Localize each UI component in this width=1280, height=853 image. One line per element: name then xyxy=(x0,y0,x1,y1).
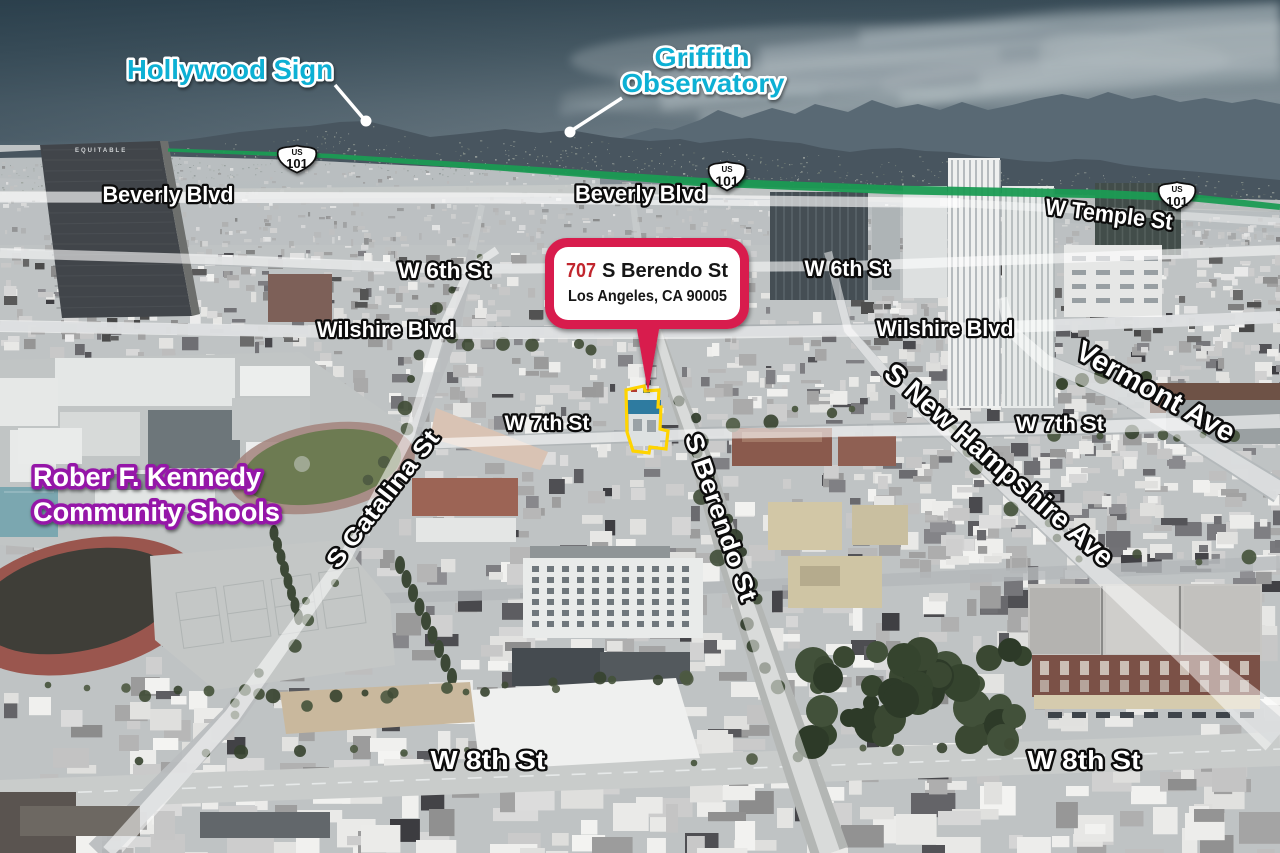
svg-text:Community Shools: Community Shools xyxy=(33,497,280,527)
svg-text:Hollywood Sign: Hollywood Sign xyxy=(127,54,333,85)
svg-text:Beverly Blvd: Beverly Blvd xyxy=(103,182,234,207)
svg-text:W 7th St: W 7th St xyxy=(505,412,590,435)
svg-text:W 6th St: W 6th St xyxy=(805,256,891,281)
svg-text:W 8th St: W 8th St xyxy=(431,745,546,775)
svg-text:EQUITABLE: EQUITABLE xyxy=(75,148,127,154)
svg-text:Observatory: Observatory xyxy=(622,68,786,98)
svg-text:US: US xyxy=(1171,185,1183,194)
svg-text:Los Angeles, CA 90005: Los Angeles, CA 90005 xyxy=(568,288,727,305)
svg-text:101: 101 xyxy=(286,156,308,171)
svg-text:101: 101 xyxy=(1166,194,1188,209)
svg-text:Beverly Blvd: Beverly Blvd xyxy=(575,181,707,206)
svg-text:W 8th St: W 8th St xyxy=(1028,745,1141,775)
svg-text:Wilshire Blvd: Wilshire Blvd xyxy=(877,316,1014,341)
svg-text:707: 707 xyxy=(566,260,596,282)
svg-text:S Berendo St: S Berendo St xyxy=(602,260,728,282)
svg-text:101: 101 xyxy=(715,173,739,189)
svg-text:Wilshire Blvd: Wilshire Blvd xyxy=(317,317,455,342)
svg-text:Rober F. Kennedy: Rober F. Kennedy xyxy=(33,462,261,492)
svg-text:W 7th St: W 7th St xyxy=(1016,413,1104,436)
svg-text:W 6th St: W 6th St xyxy=(398,258,491,283)
